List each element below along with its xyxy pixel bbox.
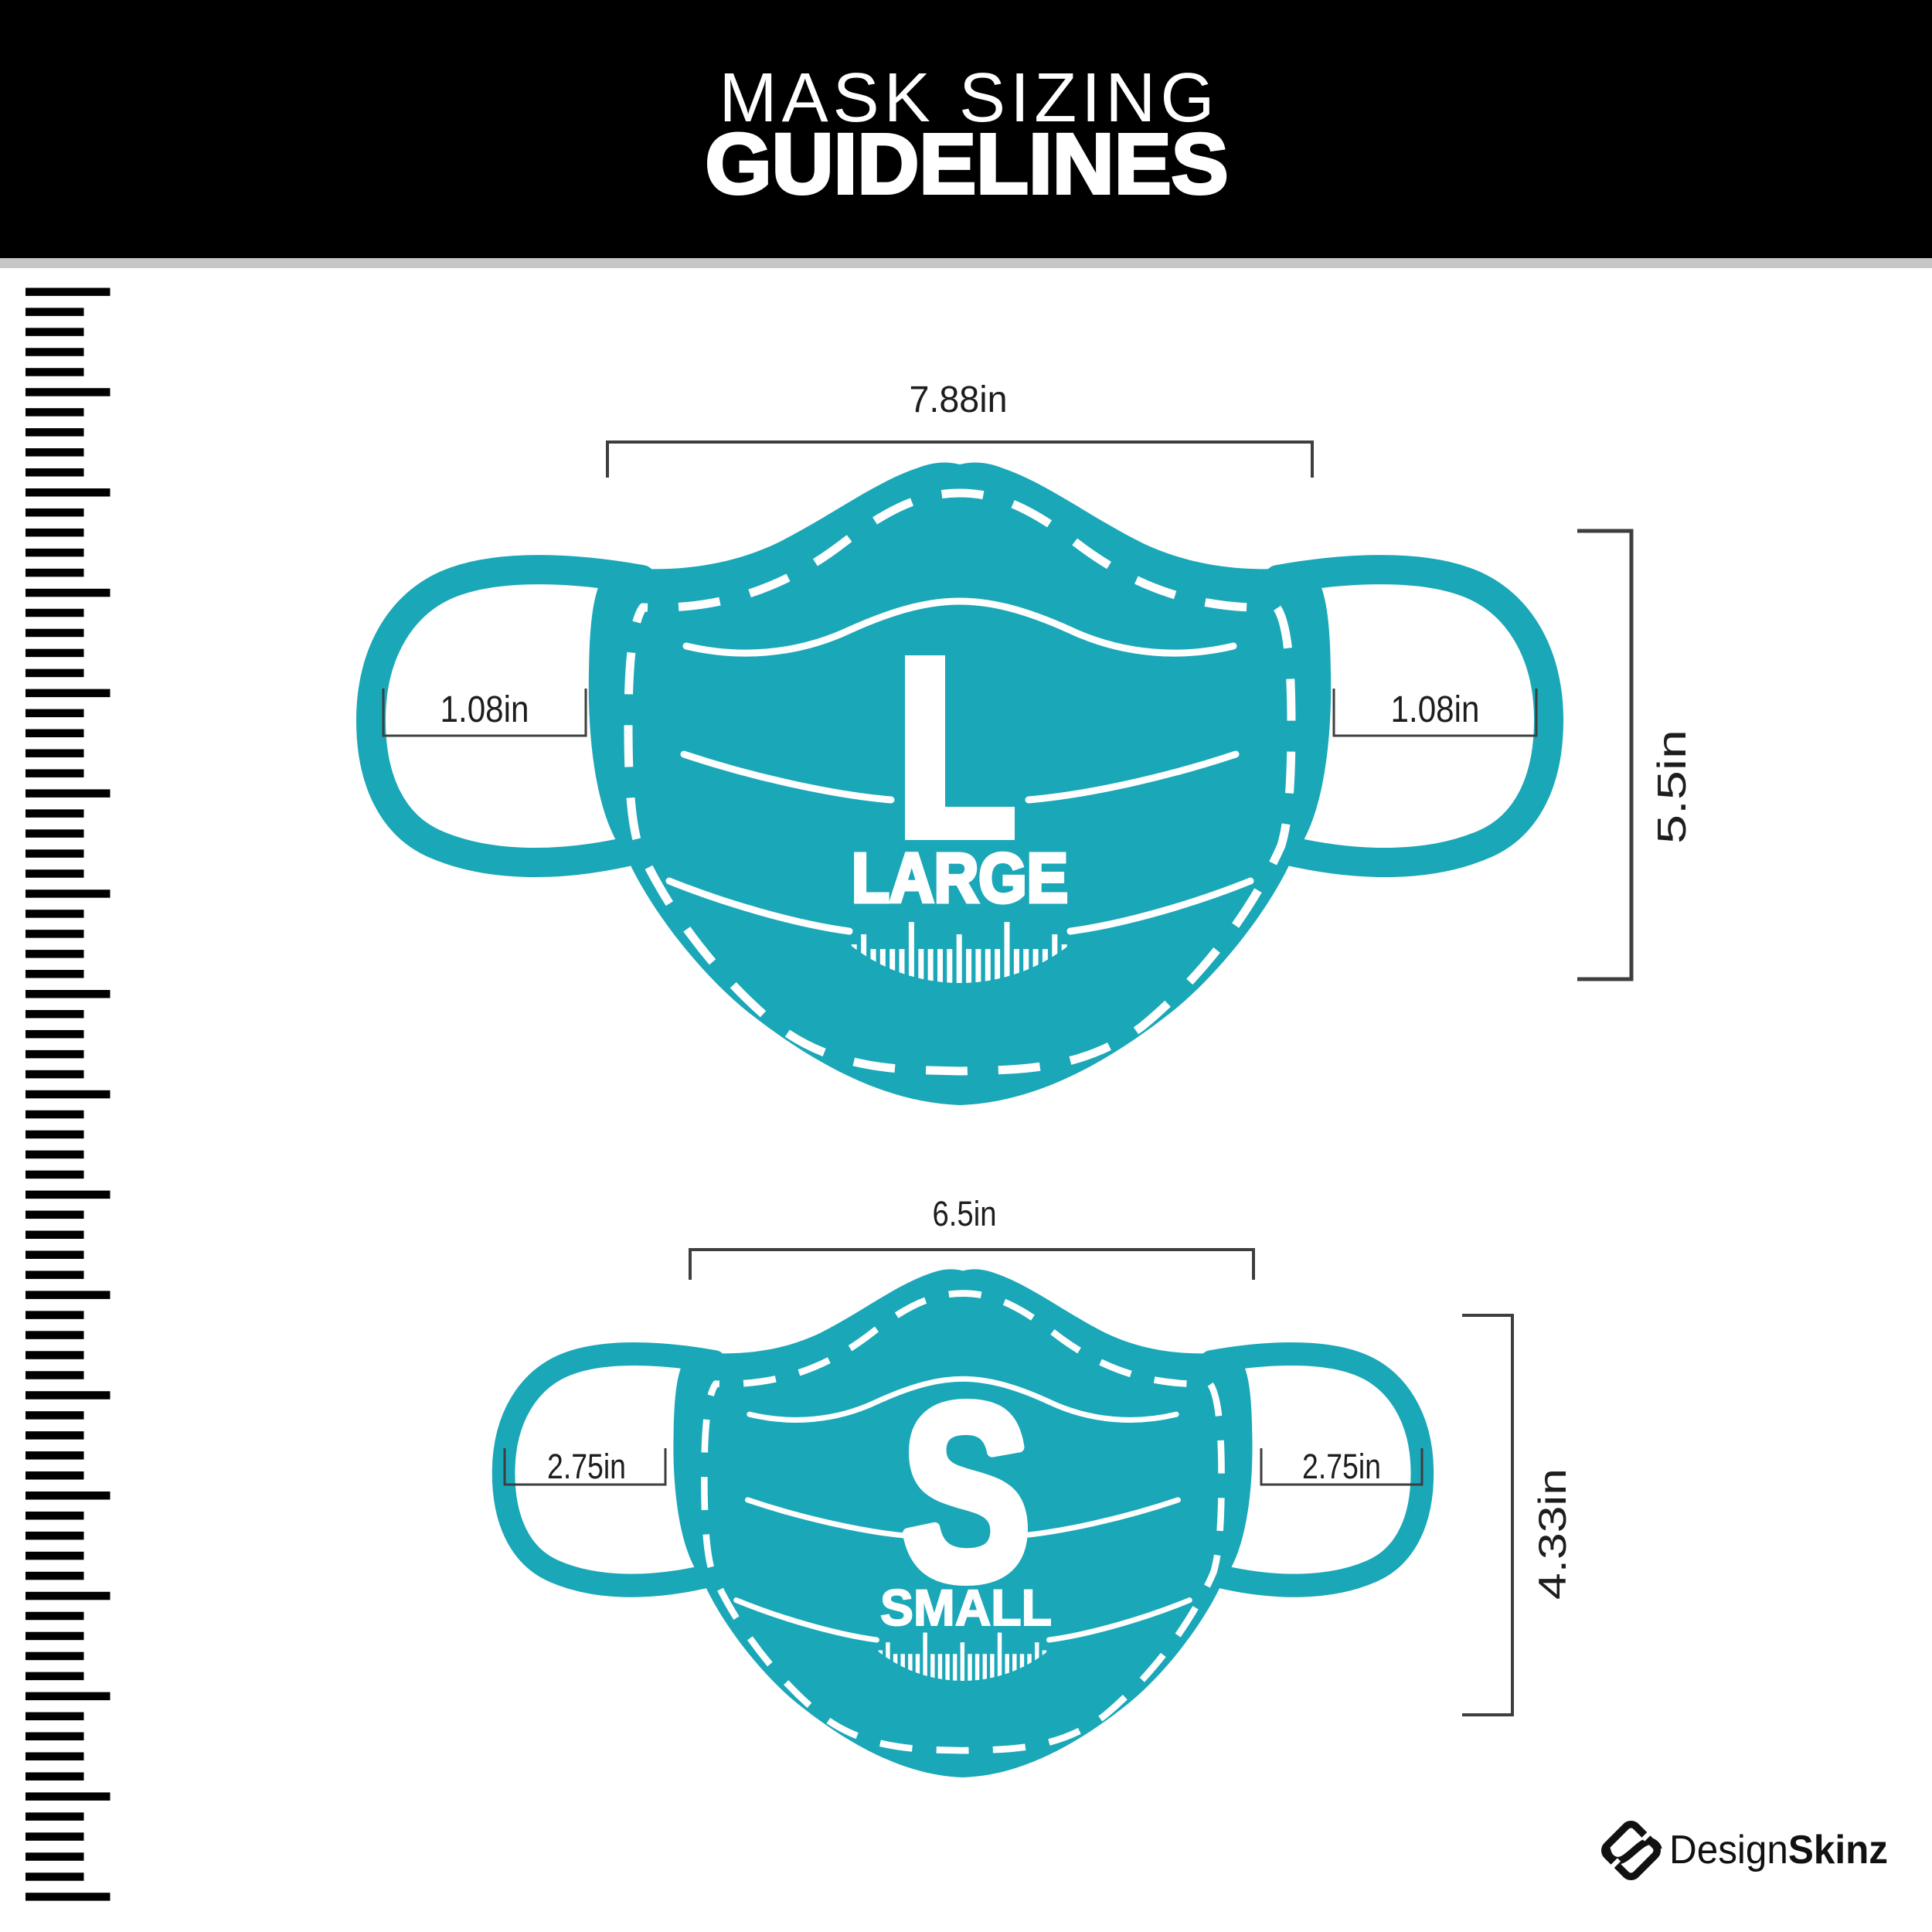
svg-text:2.75in: 2.75in: [1302, 1447, 1381, 1486]
svg-text:GUIDELINES: GUIDELINES: [706, 117, 1229, 212]
svg-text:2.75in: 2.75in: [547, 1447, 626, 1486]
svg-text:5.5in: 5.5in: [1650, 730, 1695, 844]
svg-text:SMALL: SMALL: [880, 1579, 1052, 1636]
svg-text:1.08in: 1.08in: [440, 689, 529, 730]
svg-text:7.88in: 7.88in: [910, 379, 1008, 420]
svg-text:4.33in: 4.33in: [1531, 1468, 1574, 1600]
svg-text:6.5in: 6.5in: [933, 1194, 997, 1233]
svg-text:LARGE: LARGE: [852, 840, 1068, 917]
svg-text:DesignSkinz: DesignSkinz: [1669, 1828, 1888, 1872]
svg-text:1.08in: 1.08in: [1391, 689, 1480, 730]
